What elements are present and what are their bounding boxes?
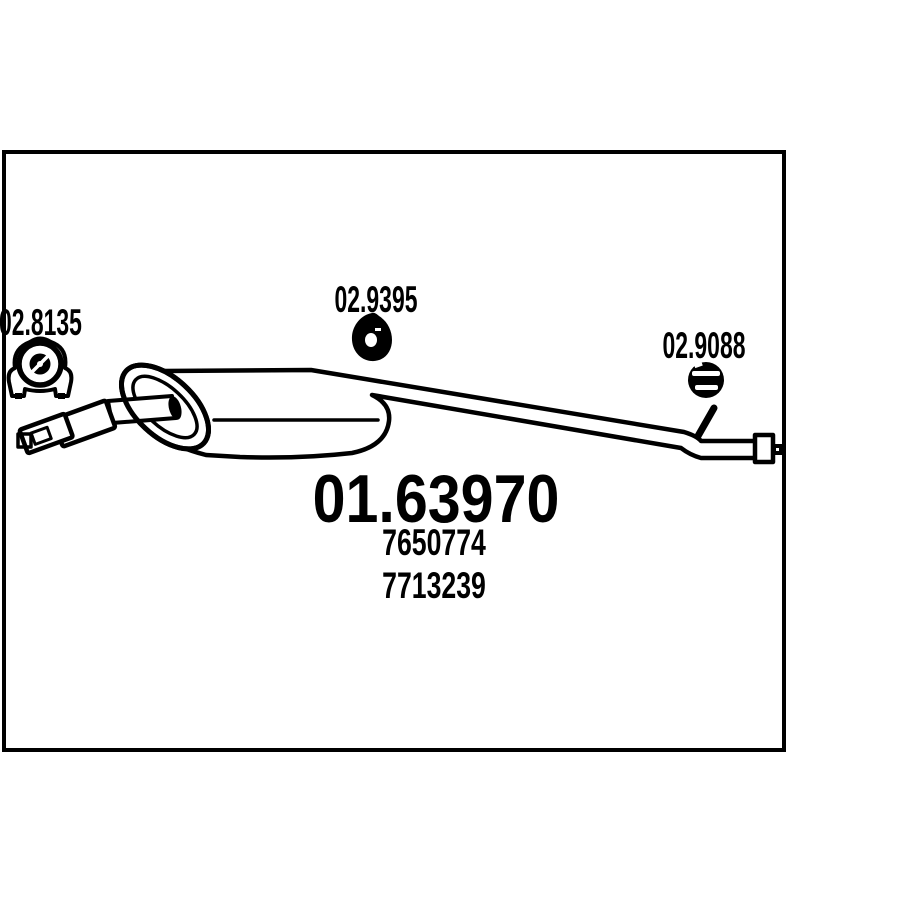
rubber-grommet-icon — [688, 361, 724, 398]
inlet-pipe — [108, 395, 184, 423]
oem-reference-1: 7650774 — [362, 524, 506, 561]
hanger-rod — [698, 408, 714, 436]
product-diagram-page: 02.8135 02.9395 02.9088 01.63970 7650774… — [0, 0, 900, 900]
exhaust-drawing — [0, 0, 900, 900]
pipe-end-collar — [755, 435, 782, 462]
inlet-sleeve — [18, 400, 115, 453]
mounting-clamp-icon — [9, 339, 72, 400]
label-mid-hanger-code: 02.9395 — [333, 281, 420, 318]
label-clamp-code: 02.8135 — [0, 304, 86, 341]
muffler-and-outlet-pipe — [139, 370, 757, 458]
label-rear-grommet-code: 02.9088 — [661, 327, 748, 364]
oem-reference-2: 7713239 — [362, 567, 506, 604]
